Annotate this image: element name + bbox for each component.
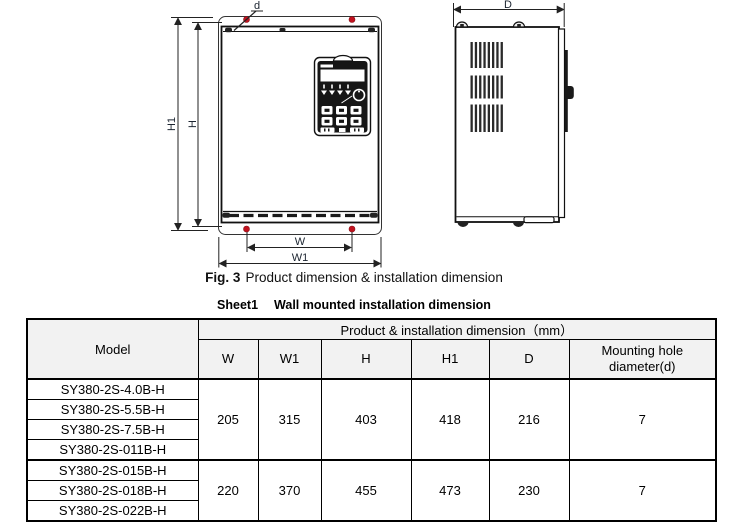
front-view bbox=[219, 17, 382, 235]
side-view bbox=[456, 22, 574, 227]
label-w: W bbox=[295, 236, 306, 248]
table-body: SY380-2S-4.0B-H2053154034182167SY380-2S-… bbox=[27, 379, 716, 521]
keypad-panel bbox=[315, 56, 371, 136]
model-cell: SY380-2S-011B-H bbox=[27, 440, 198, 461]
figure-caption: Fig. 3Product dimension & installation d… bbox=[0, 270, 738, 285]
label-d: d bbox=[254, 0, 260, 12]
column-header-hole-diameter: Mounting hole diameter(d) bbox=[569, 340, 716, 380]
label-h: H bbox=[187, 120, 199, 128]
value-cell: 205 bbox=[198, 379, 258, 460]
model-cell: SY380-2S-7.5B-H bbox=[27, 420, 198, 440]
value-cell: 315 bbox=[258, 379, 321, 460]
column-group-header: Product & installation dimension（mm） bbox=[198, 319, 716, 340]
keypad-bottom-keys bbox=[321, 128, 365, 133]
value-cell: 473 bbox=[411, 460, 489, 521]
keypad-label-strip bbox=[321, 65, 334, 68]
label-w1: W1 bbox=[292, 252, 309, 264]
column-header-h: H bbox=[321, 340, 411, 380]
mounting-hole-bottom-right bbox=[349, 226, 355, 232]
model-cell: SY380-2S-5.5B-H bbox=[27, 400, 198, 420]
value-cell: 7 bbox=[569, 379, 716, 460]
table-row: SY380-2S-4.0B-H2053154034182167 bbox=[27, 379, 716, 400]
value-cell: 7 bbox=[569, 460, 716, 521]
front-cover-edge bbox=[559, 29, 565, 218]
installation-dimension-table: Model Product & installation dimension（m… bbox=[26, 318, 717, 522]
model-cell: SY380-2S-015B-H bbox=[27, 460, 198, 481]
value-cell: 220 bbox=[198, 460, 258, 521]
product-dimension-figure: d H1 H W W1 D bbox=[0, 0, 738, 268]
label-h1: H1 bbox=[166, 117, 178, 131]
column-header-model: Model bbox=[27, 319, 198, 379]
column-header-w: W bbox=[198, 340, 258, 380]
knob-side-profile bbox=[565, 86, 574, 99]
column-header-w1: W1 bbox=[258, 340, 321, 380]
table-title-number: Sheet1 bbox=[217, 298, 258, 312]
label-depth-d: D bbox=[504, 0, 512, 11]
model-cell: SY380-2S-022B-H bbox=[27, 501, 198, 522]
mounting-hole-bottom-left bbox=[244, 226, 250, 232]
value-cell: 230 bbox=[489, 460, 569, 521]
table-title: Sheet1Wall mounted installation dimensio… bbox=[0, 298, 738, 312]
mounting-hole-top-right bbox=[349, 17, 355, 23]
keypad-display bbox=[321, 70, 365, 82]
column-header-d: D bbox=[489, 340, 569, 380]
figure-caption-number: Fig. 3 bbox=[205, 270, 240, 285]
value-cell: 418 bbox=[411, 379, 489, 460]
value-cell: 216 bbox=[489, 379, 569, 460]
column-header-h1: H1 bbox=[411, 340, 489, 380]
table-row: SY380-2S-015B-H2203704554732307 bbox=[27, 460, 716, 481]
dimension-drawing: d H1 H W W1 D bbox=[0, 0, 738, 268]
model-cell: SY380-2S-4.0B-H bbox=[27, 379, 198, 400]
figure-caption-text: Product dimension & installation dimensi… bbox=[245, 270, 502, 285]
value-cell: 370 bbox=[258, 460, 321, 521]
value-cell: 403 bbox=[321, 379, 411, 460]
model-cell: SY380-2S-018B-H bbox=[27, 481, 198, 501]
value-cell: 455 bbox=[321, 460, 411, 521]
table-title-text: Wall mounted installation dimension bbox=[274, 298, 491, 312]
